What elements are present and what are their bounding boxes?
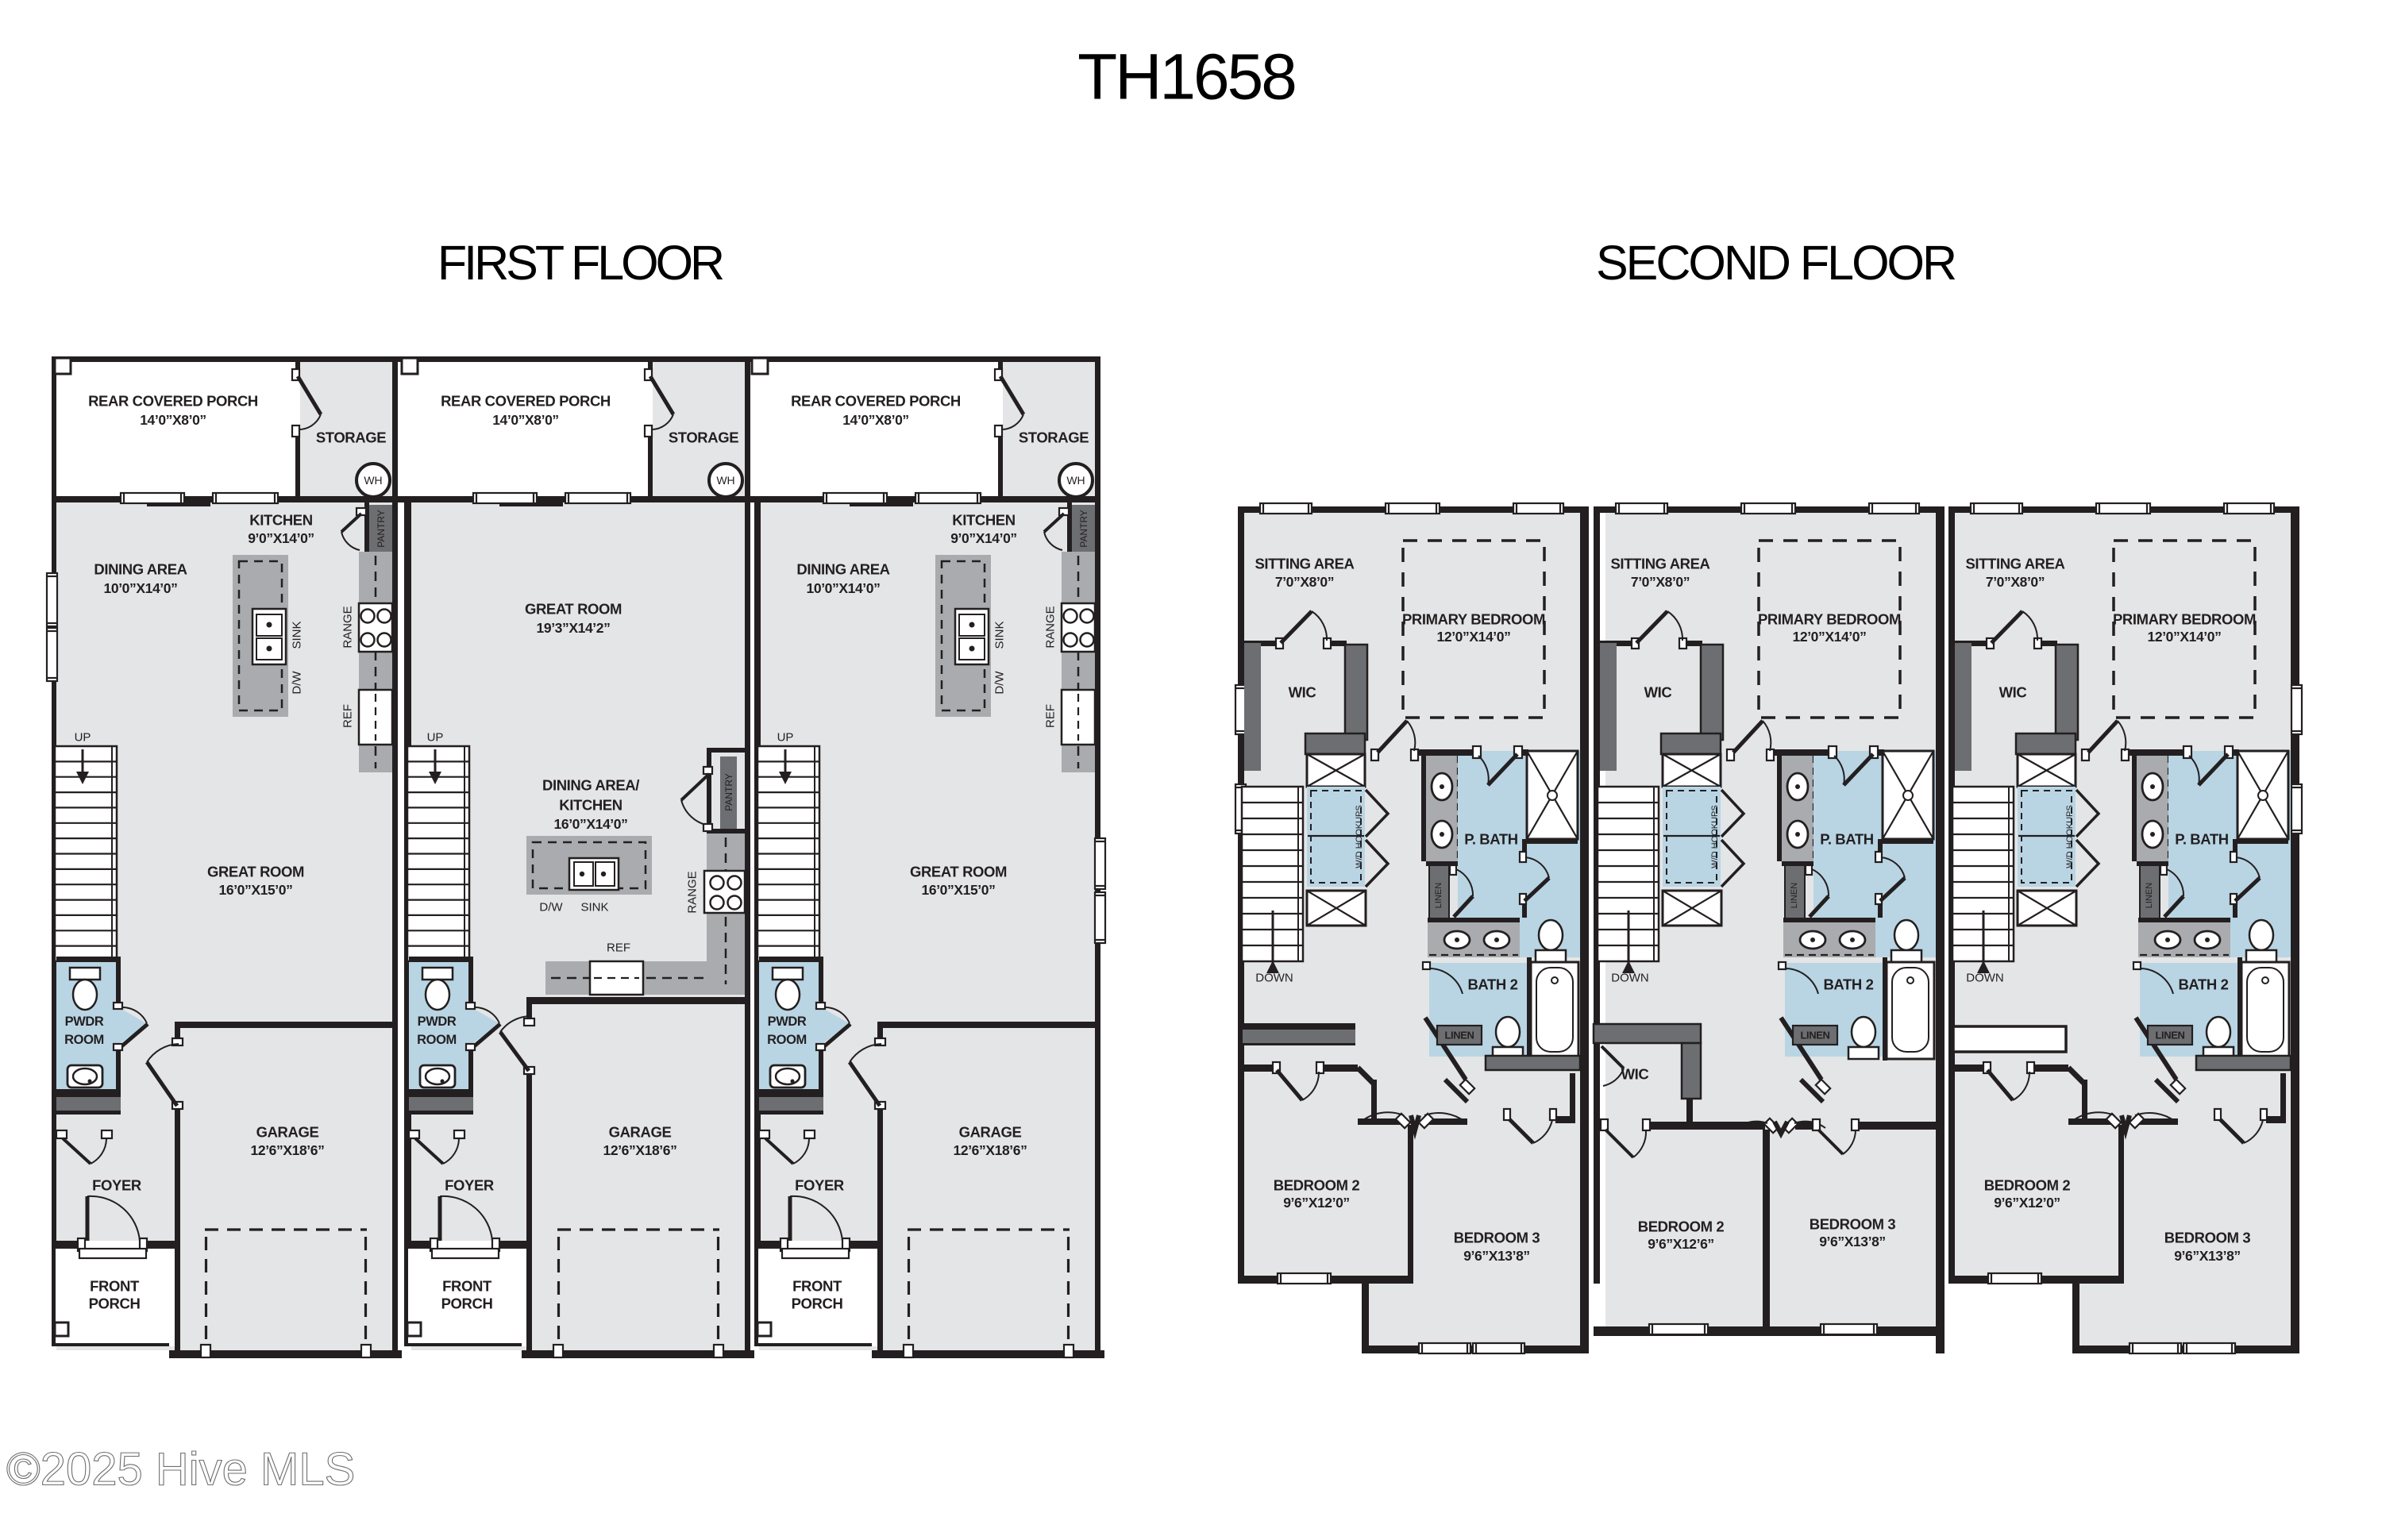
svg-text:10’0”X14’0”: 10’0”X14’0” <box>807 580 881 596</box>
svg-text:PANTRY: PANTRY <box>376 510 387 548</box>
svg-text:BATH 2: BATH 2 <box>1467 976 1517 993</box>
svg-text:WIC: WIC <box>1644 684 1672 701</box>
svg-text:REF: REF <box>607 941 630 955</box>
svg-text:GREAT ROOM: GREAT ROOM <box>207 864 304 880</box>
svg-text:BEDROOM 2: BEDROOM 2 <box>1638 1219 1725 1235</box>
svg-text:PWDR: PWDR <box>768 1014 807 1029</box>
svg-text:SINK: SINK <box>580 901 608 914</box>
svg-text:9’6”X12’0”: 9’6”X12’0” <box>1994 1195 2060 1211</box>
svg-text:12’6”X18’6”: 12’6”X18’6” <box>603 1142 677 1158</box>
svg-text:W/D HOOKUPS: W/D HOOKUPS <box>1710 805 1720 868</box>
svg-text:PORCH: PORCH <box>441 1296 493 1312</box>
svg-text:RANGE: RANGE <box>1044 606 1058 648</box>
svg-text:12’0”X14’0”: 12’0”X14’0” <box>2148 629 2222 645</box>
svg-text:D/W: D/W <box>291 671 304 695</box>
svg-text:9’6”X13’8”: 9’6”X13’8” <box>1463 1248 1530 1264</box>
svg-text:DOWN: DOWN <box>1611 972 1649 985</box>
svg-text:7’0”X8’0”: 7’0”X8’0” <box>1631 574 1690 590</box>
svg-text:DINING AREA: DINING AREA <box>94 561 187 578</box>
svg-text:DOWN: DOWN <box>1255 972 1293 985</box>
svg-text:FOYER: FOYER <box>92 1177 141 1194</box>
svg-text:RANGE: RANGE <box>686 871 700 913</box>
svg-text:©2025 Hive MLS: ©2025 Hive MLS <box>6 1444 355 1496</box>
svg-text:WIC: WIC <box>1289 684 1316 701</box>
svg-text:W/D HOOKUPS: W/D HOOKUPS <box>2065 805 2075 868</box>
svg-text:KITCHEN: KITCHEN <box>249 512 312 529</box>
svg-text:LINEN: LINEN <box>2145 883 2154 908</box>
svg-text:D/W: D/W <box>993 671 1007 695</box>
svg-text:10’0”X14’0”: 10’0”X14’0” <box>104 580 178 596</box>
svg-text:KITCHEN: KITCHEN <box>559 797 622 814</box>
svg-text:SECOND FLOOR: SECOND FLOOR <box>1596 236 1956 290</box>
svg-text:BEDROOM 2: BEDROOM 2 <box>1274 1177 1360 1194</box>
svg-text:7’0”X8’0”: 7’0”X8’0” <box>1275 574 1334 590</box>
svg-text:P. BATH: P. BATH <box>1820 831 1873 848</box>
svg-text:PWDR: PWDR <box>418 1014 457 1029</box>
svg-text:PRIMARY BEDROOM: PRIMARY BEDROOM <box>1402 611 1545 628</box>
svg-text:9’6”X12’6”: 9’6”X12’6” <box>1648 1236 1714 1252</box>
svg-text:7’0”X8’0”: 7’0”X8’0” <box>1986 574 2045 590</box>
svg-text:STORAGE: STORAGE <box>316 429 386 446</box>
svg-text:WH: WH <box>716 474 734 487</box>
svg-text:9’6”X13’8”: 9’6”X13’8” <box>2174 1248 2241 1264</box>
svg-text:WH: WH <box>1066 474 1085 487</box>
svg-text:BEDROOM 3: BEDROOM 3 <box>2164 1230 2251 1246</box>
svg-text:FRONT: FRONT <box>442 1278 492 1295</box>
svg-text:FRONT: FRONT <box>90 1278 140 1295</box>
svg-text:DINING AREA/: DINING AREA/ <box>542 777 639 794</box>
svg-text:D/W: D/W <box>539 901 563 914</box>
svg-text:STORAGE: STORAGE <box>669 429 738 446</box>
svg-text:UP: UP <box>427 731 444 745</box>
svg-text:TH1658: TH1658 <box>1077 41 1295 114</box>
svg-text:P. BATH: P. BATH <box>1464 831 1517 848</box>
svg-text:9’0”X14’0”: 9’0”X14’0” <box>248 530 314 546</box>
svg-text:REAR COVERED PORCH: REAR COVERED PORCH <box>441 393 611 410</box>
svg-text:14’0”X8’0”: 14’0”X8’0” <box>140 412 206 428</box>
svg-text:W/D HOOKUPS: W/D HOOKUPS <box>1355 805 1364 868</box>
svg-text:16’0”X14’0”: 16’0”X14’0” <box>554 816 628 832</box>
svg-text:SINK: SINK <box>291 621 304 649</box>
svg-text:GREAT ROOM: GREAT ROOM <box>910 864 1007 880</box>
svg-text:ROOM: ROOM <box>417 1033 457 1047</box>
svg-text:REF: REF <box>1044 704 1058 728</box>
svg-text:ROOM: ROOM <box>64 1033 104 1047</box>
svg-text:FRONT: FRONT <box>792 1278 842 1295</box>
svg-text:16’0”X15’0”: 16’0”X15’0” <box>922 882 996 898</box>
svg-text:BEDROOM 3: BEDROOM 3 <box>1810 1216 1896 1233</box>
svg-text:PORCH: PORCH <box>89 1296 141 1312</box>
svg-text:LINEN: LINEN <box>1434 883 1443 908</box>
svg-text:LINEN: LINEN <box>2155 1030 2184 1041</box>
svg-text:PRIMARY BEDROOM: PRIMARY BEDROOM <box>1758 611 1901 628</box>
svg-text:DOWN: DOWN <box>1966 972 2004 985</box>
svg-text:SITTING AREA: SITTING AREA <box>1965 556 2064 572</box>
svg-text:BEDROOM 2: BEDROOM 2 <box>1984 1177 2071 1194</box>
svg-text:LINEN: LINEN <box>1444 1030 1474 1041</box>
svg-text:FIRST FLOOR: FIRST FLOOR <box>437 236 723 290</box>
svg-text:KITCHEN: KITCHEN <box>952 512 1015 529</box>
svg-text:12’0”X14’0”: 12’0”X14’0” <box>1437 629 1511 645</box>
svg-text:PWDR: PWDR <box>65 1014 104 1029</box>
svg-text:SITTING AREA: SITTING AREA <box>1610 556 1709 572</box>
svg-text:REAR COVERED PORCH: REAR COVERED PORCH <box>88 393 258 410</box>
svg-text:PANTRY: PANTRY <box>723 773 734 811</box>
svg-text:ROOM: ROOM <box>767 1033 807 1047</box>
svg-text:REF: REF <box>341 704 355 728</box>
svg-text:REAR COVERED PORCH: REAR COVERED PORCH <box>791 393 961 410</box>
svg-text:SITTING AREA: SITTING AREA <box>1255 556 1354 572</box>
svg-text:FOYER: FOYER <box>795 1177 844 1194</box>
svg-text:FOYER: FOYER <box>445 1177 494 1194</box>
svg-text:12’0”X14’0”: 12’0”X14’0” <box>1793 629 1867 645</box>
svg-text:BATH 2: BATH 2 <box>1823 976 1873 993</box>
svg-text:9’6”X12’0”: 9’6”X12’0” <box>1283 1195 1350 1211</box>
svg-text:WIC: WIC <box>1999 684 2027 701</box>
svg-text:STORAGE: STORAGE <box>1019 429 1089 446</box>
svg-text:16’0”X15’0”: 16’0”X15’0” <box>219 882 293 898</box>
svg-text:9’0”X14’0”: 9’0”X14’0” <box>950 530 1017 546</box>
svg-text:14’0”X8’0”: 14’0”X8’0” <box>492 412 559 428</box>
svg-text:GREAT ROOM: GREAT ROOM <box>525 601 622 618</box>
svg-text:RANGE: RANGE <box>341 606 355 648</box>
svg-text:GARAGE: GARAGE <box>959 1124 1022 1141</box>
svg-text:12’6”X18’6”: 12’6”X18’6” <box>954 1142 1027 1158</box>
svg-text:DINING AREA: DINING AREA <box>796 561 889 578</box>
svg-text:GARAGE: GARAGE <box>256 1124 319 1141</box>
svg-text:BATH 2: BATH 2 <box>2178 976 2228 993</box>
svg-text:LINEN: LINEN <box>1790 883 1799 908</box>
svg-text:UP: UP <box>75 731 91 745</box>
svg-text:BEDROOM 3: BEDROOM 3 <box>1454 1230 1540 1246</box>
svg-text:14’0”X8’0”: 14’0”X8’0” <box>842 412 909 428</box>
svg-text:UP: UP <box>777 731 794 745</box>
svg-text:WIC: WIC <box>1621 1066 1649 1083</box>
svg-text:19’3”X14’2”: 19’3”X14’2” <box>537 620 611 636</box>
svg-text:WH: WH <box>364 474 382 487</box>
svg-text:PORCH: PORCH <box>792 1296 843 1312</box>
svg-text:LINEN: LINEN <box>1800 1030 1829 1041</box>
svg-text:9’6”X13’8”: 9’6”X13’8” <box>1819 1234 1886 1249</box>
svg-text:P. BATH: P. BATH <box>2175 831 2228 848</box>
svg-text:SINK: SINK <box>993 621 1007 649</box>
svg-text:PANTRY: PANTRY <box>1078 510 1089 548</box>
svg-text:PRIMARY BEDROOM: PRIMARY BEDROOM <box>2113 611 2256 628</box>
svg-text:12’6”X18’6”: 12’6”X18’6” <box>251 1142 325 1158</box>
svg-text:GARAGE: GARAGE <box>609 1124 672 1141</box>
